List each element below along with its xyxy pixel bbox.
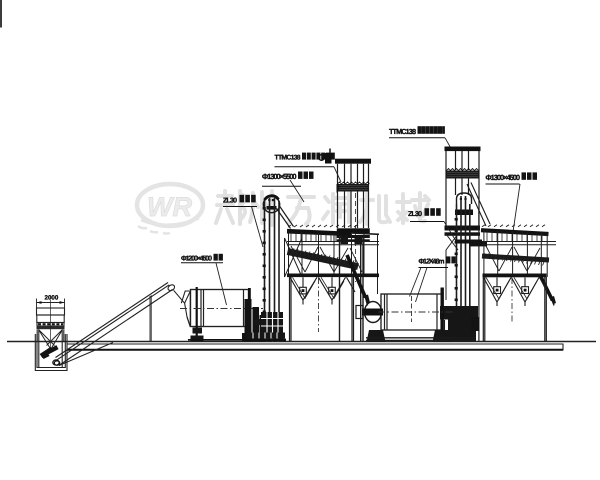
svg-text:ZL30: ZL30 (408, 211, 422, 218)
svg-text:Φ1.2X4.6m: Φ1.2X4.6m (419, 258, 445, 265)
svg-text:2000: 2000 (45, 295, 59, 302)
svg-text:ZL30: ZL30 (223, 198, 237, 205)
svg-text:Φ1300×4500: Φ1300×4500 (486, 173, 521, 182)
svg-text:Φ1300×5500: Φ1300×5500 (262, 172, 297, 181)
svg-text:Φ1200×4500: Φ1200×4500 (181, 255, 212, 262)
svg-text:TTMC138: TTMC138 (275, 154, 301, 161)
svg-text:WR: WR (147, 192, 192, 222)
svg-text:TTMC138: TTMC138 (389, 127, 416, 136)
